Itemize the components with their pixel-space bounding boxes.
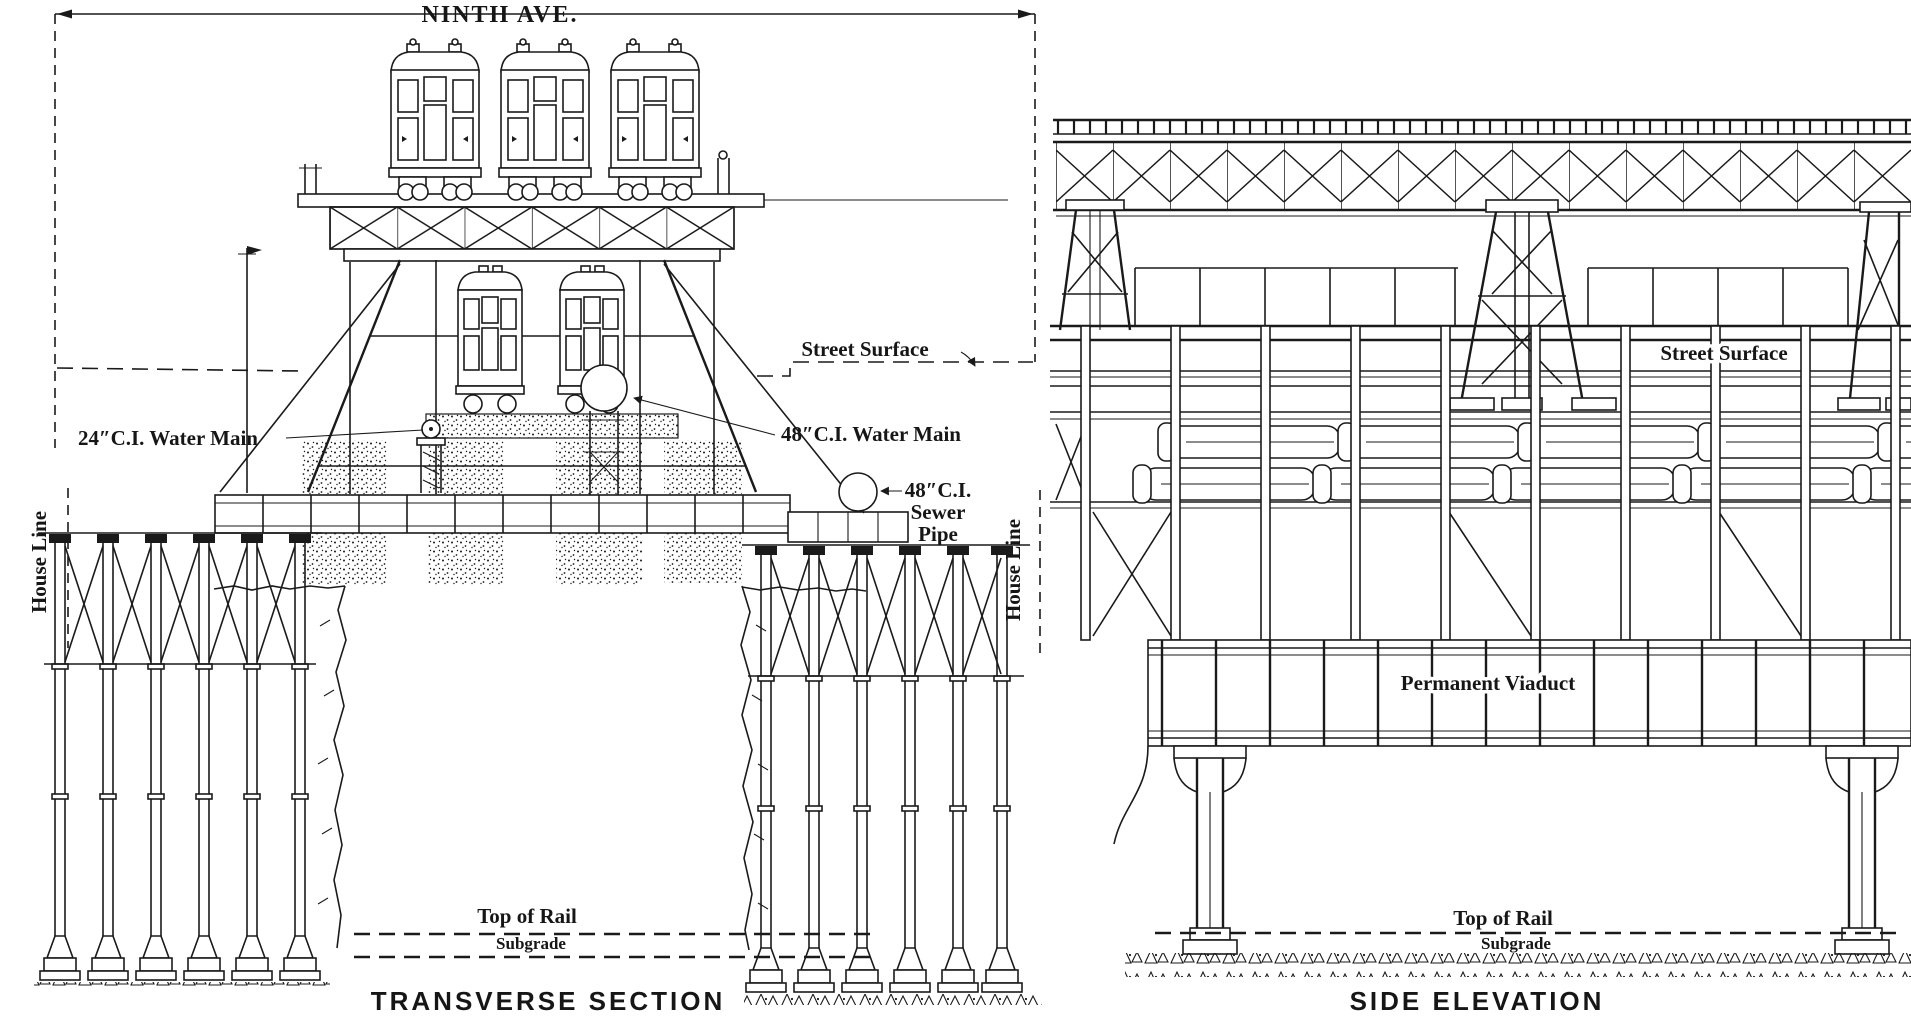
lattice-girder — [330, 207, 734, 249]
sewer-pipe-label-line1: 48″C.I. — [905, 478, 971, 502]
ground-rubble — [1125, 953, 1911, 977]
house-line-label-left: House Line — [27, 511, 51, 613]
footing-ground-hatch — [34, 982, 330, 993]
street-surface-line-left — [57, 362, 1033, 376]
column-bents-left — [34, 533, 330, 993]
sewer-pipe-symbol — [839, 473, 877, 511]
viaduct-construction-drawing: NINTH AVE. — [0, 0, 1911, 1021]
trestle-tower-a — [1060, 200, 1130, 330]
viaduct-column — [1826, 746, 1898, 954]
dimension-arrow-left-icon — [57, 10, 72, 19]
street-railing — [1135, 268, 1848, 326]
lower-deck — [344, 249, 720, 261]
house-line-label-right: House Line — [1001, 519, 1025, 621]
side-elevation-caption: SIDE ELEVATION — [1350, 986, 1605, 1016]
water-main-24-label: 24″C.I. Water Main — [78, 426, 258, 450]
sewer-pipe-label-line2: Sewer — [911, 500, 966, 524]
falsework-tower — [220, 246, 864, 513]
water-main-48-label: 48″C.I. Water Main — [781, 422, 961, 446]
side-elevation: Permanent Viaduct Street Surface Top of … — [1050, 120, 1911, 1016]
dimension-arrow-right-icon — [1018, 10, 1033, 19]
engineering-drawing-sheet: NINTH AVE. — [0, 0, 1911, 1021]
temporary-el-structure — [298, 39, 1008, 261]
transverse-section-caption: TRANSVERSE SECTION — [371, 986, 726, 1016]
excavation-rock-cut — [214, 586, 866, 950]
ninth-ave-label: NINTH AVE. — [422, 2, 579, 28]
street-surface-label-left: Street Surface — [801, 337, 928, 361]
el-car — [389, 39, 481, 200]
top-of-rail-label-right: Top of Rail — [1453, 906, 1553, 930]
el-track-girder — [1053, 120, 1911, 216]
permanent-viaduct-label: Permanent Viaduct — [1401, 671, 1575, 695]
footing-ground-hatch — [744, 994, 1042, 1005]
timber-track-ballast — [426, 414, 678, 438]
subgrade-label-right: Subgrade — [1481, 934, 1551, 953]
transverse-section: NINTH AVE. — [27, 2, 1042, 1016]
el-car — [499, 39, 591, 200]
pipe-row-lower — [1133, 465, 1911, 503]
sewer-pipe-label-line3: Pipe — [918, 522, 958, 546]
viaduct-column — [1174, 746, 1246, 954]
el-car — [609, 39, 701, 200]
subgrade-label-left: Subgrade — [496, 934, 566, 953]
trolley-car — [456, 266, 524, 413]
column-bents-right — [742, 545, 1042, 1005]
street-surface-label-elevation: Street Surface — [1660, 341, 1787, 365]
top-of-rail-label-left: Top of Rail — [477, 904, 577, 928]
